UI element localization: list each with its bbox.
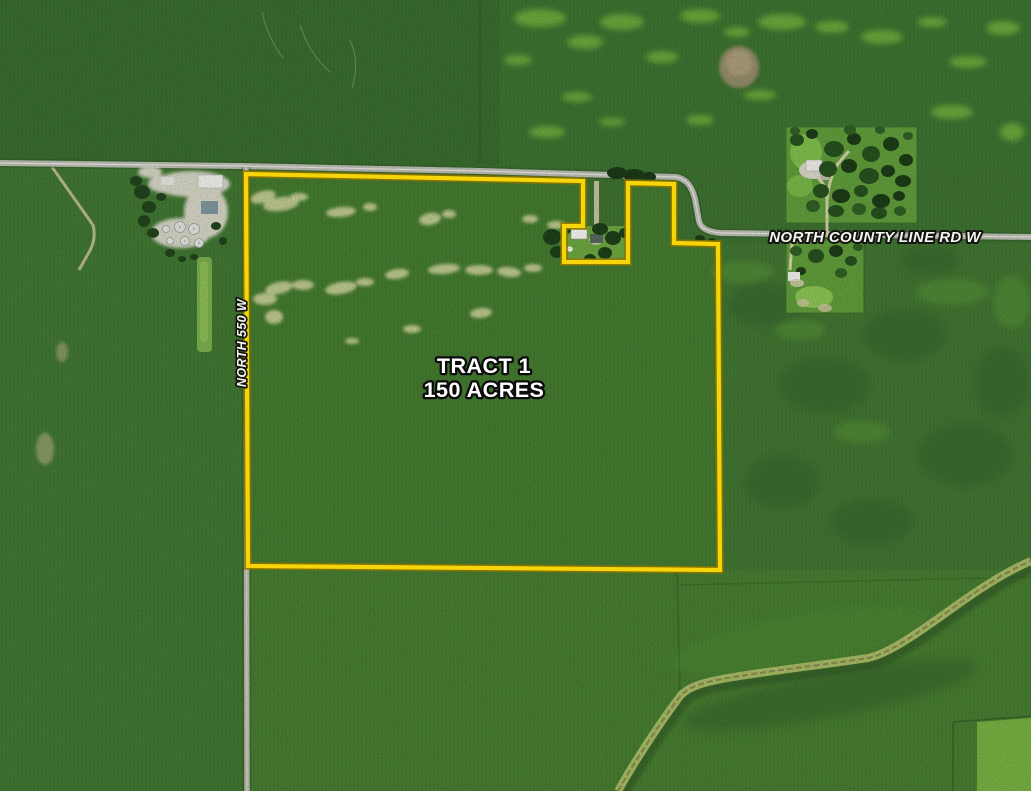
- road-label-north-550: NORTH 550 W: [235, 298, 249, 387]
- tract-acres-label: 150 ACRES: [424, 378, 545, 402]
- map-canvas: TRACT 1 150 ACRES NORTH COUNTY LINE RD W…: [0, 0, 1031, 791]
- road-label-county-line: NORTH COUNTY LINE RD W: [769, 229, 982, 246]
- tract-name-label: TRACT 1: [437, 354, 531, 378]
- aerial-map[interactable]: TRACT 1 150 ACRES NORTH COUNTY LINE RD W…: [0, 0, 1031, 791]
